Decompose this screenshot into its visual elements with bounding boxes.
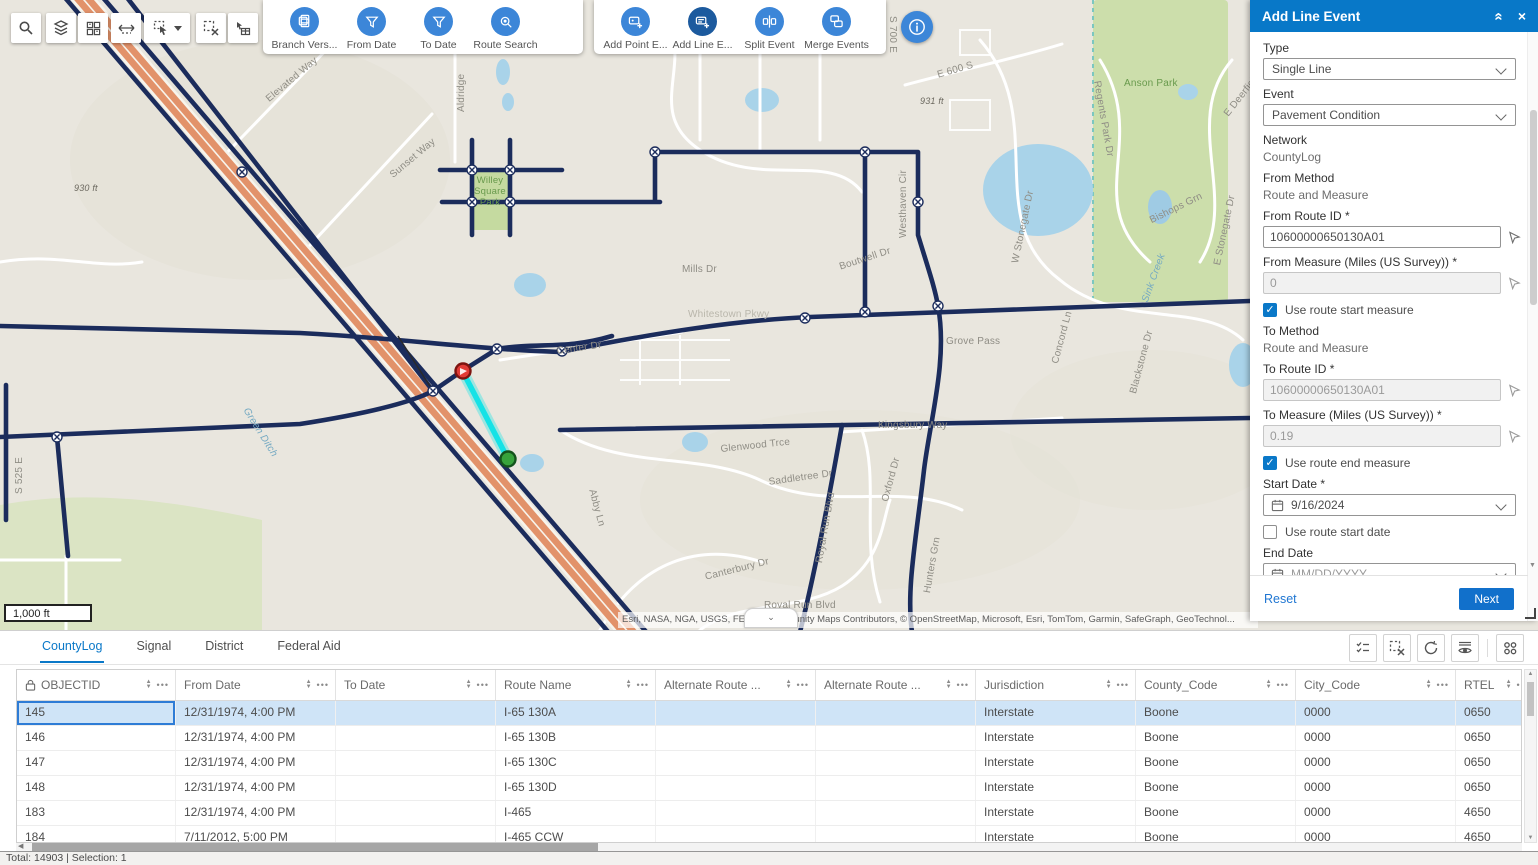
route-node-marker [650,147,660,157]
to-date-filter-icon [424,7,453,36]
panel-resize-handle[interactable] [1525,608,1536,619]
table-cell[interactable] [336,701,496,725]
table-options-button[interactable] [1496,634,1524,662]
table-cell[interactable] [656,826,816,843]
table-cell[interactable] [336,751,496,775]
map-label: 930 ft [74,183,98,193]
map-label: 931 ft [920,96,944,106]
split-event-icon [755,7,784,36]
table-cell[interactable]: I-65 130C [496,751,656,775]
table-row[interactable]: 1847/11/2012, 5:00 PMI-465 CCWInterstate… [17,826,1521,843]
from-method-value: Route and Measure [1263,188,1522,202]
network-value: CountyLog [1263,150,1522,164]
panel-title: Add Line Event [1262,9,1360,24]
use-route-start-measure-checkbox[interactable]: ✓ [1263,303,1277,317]
tool-branch-versions[interactable]: Branch Vers... [271,7,338,51]
toolbar-events: Add Point E... Add Line E... Split Event… [594,0,886,54]
tool-to-date[interactable]: To Date [405,7,472,51]
tool-route-search[interactable]: Route Search [472,7,539,51]
scale-bar: 1,000 ft [4,604,92,622]
merge-events-icon [822,7,851,36]
close-panel-icon[interactable]: × [1518,9,1526,23]
scroll-left-arrow[interactable]: ◀ [18,842,23,850]
to-measure-input[interactable] [1263,425,1501,447]
chevron-down-icon [1495,63,1506,74]
from-measure-label: From Measure (Miles (US Survey)) * [1263,255,1522,269]
clear-selection-icon [1389,640,1405,656]
table-cell[interactable] [816,701,976,725]
attribute-table-panel: CountyLog Signal District Federal Aid OB… [0,630,1538,865]
tab-countylog[interactable]: CountyLog [40,631,104,663]
column-header[interactable]: Jurisdiction▲▼••• [976,670,1136,700]
column-menu-icon[interactable]: ••• [957,680,969,690]
tab-district[interactable]: District [203,631,245,663]
clear-selection-icon [203,20,219,36]
end-date-label: End Date [1263,546,1522,560]
add-line-event-icon [688,7,717,36]
table-tabs-row: CountyLog Signal District Federal Aid [0,631,1538,665]
table-cell[interactable]: 146 [17,726,176,750]
table-cell[interactable]: 183 [17,801,176,825]
selection-list-icon [1355,640,1371,656]
tool-add-line-event[interactable]: Add Line E... [669,7,736,51]
from-measure-input[interactable] [1263,272,1501,294]
pick-to-route-icon[interactable] [1508,384,1521,397]
map-label: Aldridge [456,74,467,112]
map-label: Kingsbury Way [878,420,947,431]
route-node-marker [860,147,870,157]
column-header[interactable]: County_Code▲▼••• [1136,670,1296,700]
pick-to-measure-icon[interactable] [1508,430,1521,443]
table-body: 14512/31/1974, 4:00 PMI-65 130AInterstat… [17,701,1521,843]
sort-icon[interactable]: ▲▼ [1266,680,1272,690]
refresh-icon [1423,640,1439,656]
collapse-panel-icon[interactable]: « [1492,12,1507,20]
to-route-id-input[interactable] [1263,379,1501,401]
column-header[interactable]: Route Name▲▼••• [496,670,656,700]
panel-header: Add Line Event « × [1250,0,1538,32]
from-date-filter-icon [357,7,386,36]
lock-icon [25,679,36,691]
sort-icon[interactable]: ▲▼ [626,680,632,690]
sort-icon[interactable]: ▲▼ [146,680,152,690]
column-header[interactable]: City_Code▲▼••• [1296,670,1456,700]
pick-from-measure-icon[interactable] [1508,277,1521,290]
sort-icon[interactable]: ▲▼ [786,680,792,690]
table-cell[interactable]: 12/31/1974, 4:00 PM [176,726,336,750]
map-label: Anson Park [1124,78,1178,89]
table-cell[interactable] [656,751,816,775]
table-row[interactable]: 18312/31/1974, 4:00 PMI-465InterstateBoo… [17,801,1521,826]
route-node-marker [505,165,515,175]
tool-from-date[interactable]: From Date [338,7,405,51]
table-cell[interactable]: Interstate [976,751,1136,775]
column-header[interactable]: From Date▲▼••• [176,670,336,700]
status-bar: Total: 14903 | Selection: 1 [0,851,1538,865]
from-route-id-label: From Route ID * [1263,209,1522,223]
table-cell[interactable] [656,701,816,725]
column-menu-icon[interactable]: ••• [1517,680,1522,690]
chevron-down-icon [1495,568,1506,575]
table-cell[interactable]: Boone [1136,776,1296,800]
table-cell[interactable]: 148 [17,776,176,800]
calendar-icon [1271,568,1284,576]
measure-icon [118,21,135,35]
table-cell[interactable]: 0000 [1296,726,1456,750]
table-row[interactable]: 14512/31/1974, 4:00 PMI-65 130AInterstat… [17,701,1521,726]
table-cell[interactable]: 12/31/1974, 4:00 PM [176,751,336,775]
from-route-id-input[interactable] [1263,226,1501,248]
table-cell[interactable] [336,826,496,843]
measure-button[interactable] [111,13,141,43]
route-node-marker [913,197,923,207]
tab-federal-aid[interactable]: Federal Aid [275,631,342,663]
next-button[interactable]: Next [1459,588,1514,610]
column-header[interactable]: Alternate Route ...▲▼••• [656,670,816,700]
route-node-marker [428,386,438,396]
basemap-gallery-button[interactable] [78,13,108,43]
table-cell[interactable]: Interstate [976,726,1136,750]
route-node-marker [52,432,62,442]
from-method-label: From Method [1263,171,1522,185]
route-node-marker [800,313,810,323]
table-vertical-scrollbar[interactable]: ▲ ▼ [1524,669,1537,843]
to-route-id-label: To Route ID * [1263,362,1522,376]
table-cell[interactable] [816,776,976,800]
table-cell[interactable]: I-65 130D [496,776,656,800]
sort-icon[interactable]: ▲▼ [1426,680,1432,690]
table-cell[interactable] [336,776,496,800]
layers-icon [53,20,69,36]
table-cell[interactable]: I-465 [496,801,656,825]
toolbar-primary: Branch Vers... From Date To Date Route S… [263,0,583,54]
table-cell[interactable] [656,801,816,825]
branch-versions-icon [290,7,319,36]
table-cell[interactable]: 0000 [1296,776,1456,800]
chevron-down-icon [1495,499,1506,510]
map-attribution: Esri, NASA, NGA, USGS, FEMA | Community … [618,612,1258,628]
table-cell[interactable] [336,726,496,750]
table-cell[interactable]: 145 [17,701,176,725]
table-cell[interactable]: I-65 130A [496,701,656,725]
select-by-attributes-button[interactable] [228,13,258,43]
column-menu-icon[interactable]: ••• [1117,680,1129,690]
add-line-event-panel: Add Line Event « × Type Single Line Even… [1250,0,1538,621]
use-route-start-date-checkbox[interactable] [1263,525,1277,539]
map-label: S 525 E [14,457,25,494]
table-cell[interactable]: Interstate [976,801,1136,825]
route-start-marker [456,364,471,379]
use-route-end-measure-label: Use route end measure [1285,456,1410,470]
refresh-button[interactable] [1417,634,1445,662]
to-measure-label: To Measure (Miles (US Survey)) * [1263,408,1522,422]
basemap-grid-icon [86,21,101,36]
table-cell[interactable]: I-465 CCW [496,826,656,843]
attribute-table: OBJECTID▲▼•••From Date▲▼•••To Date▲▼•••R… [16,669,1522,843]
table-cell[interactable]: 0650 [1456,751,1522,775]
to-method-label: To Method [1263,324,1522,338]
route-node-marker [933,301,943,311]
table-cell[interactable]: 12/31/1974, 4:00 PM [176,776,336,800]
panel-body: Type Single Line Event Pavement Conditio… [1250,32,1528,575]
table-cell[interactable] [816,826,976,843]
table-cell[interactable]: 12/31/1974, 4:00 PM [176,701,336,725]
table-cell[interactable]: 0000 [1296,701,1456,725]
table-cell[interactable] [336,801,496,825]
use-route-start-measure-label: Use route start measure [1285,303,1414,317]
table-cell[interactable]: 0650 [1456,776,1522,800]
sort-icon[interactable]: ▲▼ [1506,680,1512,690]
route-node-marker [492,344,502,354]
show-selection-button[interactable] [1349,634,1377,662]
search-icon [18,20,34,36]
map-label: Mills Dr [682,264,717,275]
table-cell[interactable]: 4650 [1456,826,1522,843]
add-point-event-icon [621,7,650,36]
type-label: Type [1263,41,1522,55]
table-cell[interactable]: 0000 [1296,751,1456,775]
toolbar-divider [1487,639,1488,657]
column-header[interactable]: To Date▲▼••• [336,670,496,700]
table-row[interactable]: 14712/31/1974, 4:00 PMI-65 130CInterstat… [17,751,1521,776]
column-header[interactable]: RTEL▲▼••• [1456,670,1522,700]
sort-icon[interactable]: ▲▼ [466,680,472,690]
route-end-marker [501,452,516,467]
table-cell[interactable]: 7/11/2012, 5:00 PM [176,826,336,843]
table-cell[interactable]: 12/31/1974, 4:00 PM [176,801,336,825]
table-cell[interactable] [816,751,976,775]
route-node-marker [860,307,870,317]
clear-selection-button[interactable] [1383,634,1411,662]
search-button[interactable] [11,13,41,43]
tool-add-point-event[interactable]: Add Point E... [602,7,669,51]
table-cell[interactable]: Boone [1136,751,1296,775]
attribution-collapse-toggle[interactable]: ⌄ [744,608,798,628]
column-header[interactable]: OBJECTID▲▼••• [17,670,176,700]
tool-merge-events[interactable]: Merge Events [803,7,870,51]
map-label: Grove Pass [946,336,1000,347]
column-menu-icon[interactable]: ••• [477,680,489,690]
sort-icon[interactable]: ▲▼ [1106,680,1112,690]
start-date-label: Start Date * [1263,477,1522,491]
column-header[interactable]: Alternate Route ...▲▼••• [816,670,976,700]
table-cell[interactable]: 0650 [1456,726,1522,750]
event-select[interactable]: Pavement Condition [1263,104,1516,126]
table-cell[interactable]: Boone [1136,826,1296,843]
column-menu-icon[interactable]: ••• [637,680,649,690]
table-cell[interactable]: I-65 130B [496,726,656,750]
route-node-marker [467,165,477,175]
table-header: OBJECTID▲▼•••From Date▲▼•••To Date▲▼•••R… [17,670,1521,701]
table-cell[interactable]: Boone [1136,701,1296,725]
table-cell[interactable]: 0000 [1296,801,1456,825]
map-label: S 700 E [887,16,898,53]
column-menu-icon[interactable]: ••• [1437,680,1449,690]
info-button[interactable] [901,11,933,43]
table-cell[interactable]: 184 [17,826,176,843]
table-cell[interactable]: 4650 [1456,801,1522,825]
column-menu-icon[interactable]: ••• [797,680,809,690]
info-icon [908,18,926,36]
table-row[interactable]: 14612/31/1974, 4:00 PMI-65 130BInterstat… [17,726,1521,751]
record-count: Total: 14903 | Selection: 1 [6,852,127,864]
scrollbar-thumb[interactable] [32,843,598,851]
select-button[interactable] [144,13,190,43]
table-cell[interactable] [656,726,816,750]
tab-signal[interactable]: Signal [134,631,173,663]
tool-split-event[interactable]: Split Event [736,7,803,51]
table-cell[interactable]: 147 [17,751,176,775]
sort-icon[interactable]: ▲▼ [946,680,952,690]
apps-grid-icon [1502,640,1518,656]
column-menu-icon[interactable]: ••• [317,680,329,690]
clear-selection-map-button[interactable] [196,13,226,43]
route-search-icon [491,7,520,36]
panel-footer: Reset Next [1250,575,1528,621]
start-date-picker[interactable]: 9/16/2024 [1263,494,1516,516]
use-route-start-date-label: Use route start date [1285,525,1390,539]
layers-button[interactable] [46,13,76,43]
calendar-icon [1271,499,1284,512]
panel-scrollbar[interactable]: ▼ [1527,32,1538,621]
use-route-end-measure-checkbox[interactable]: ✓ [1263,456,1277,470]
select-dropdown-caret[interactable] [174,26,182,31]
table-cell[interactable] [816,801,976,825]
table-row[interactable]: 14812/31/1974, 4:00 PMI-65 130DInterstat… [17,776,1521,801]
route-node-marker [237,167,247,177]
to-method-value: Route and Measure [1263,341,1522,355]
column-menu-icon[interactable]: ••• [1277,680,1289,690]
cursor-table-icon [235,20,251,36]
eye-list-icon [1457,640,1473,656]
show-selected-records-button[interactable] [1451,634,1479,662]
reset-link[interactable]: Reset [1264,592,1297,606]
pick-from-route-icon[interactable] [1508,231,1521,244]
column-menu-icon[interactable]: ••• [157,680,169,690]
table-cell[interactable]: Boone [1136,726,1296,750]
end-date-picker[interactable]: MM/DD/YYYY [1263,563,1516,575]
map-label: Willey Square Park [468,176,512,209]
table-cell[interactable]: 0650 [1456,701,1522,725]
table-cell[interactable]: Boone [1136,801,1296,825]
chevron-down-icon [1495,109,1506,120]
map-label: Whitestown Pkwy [688,309,769,320]
table-cell[interactable]: Interstate [976,826,1136,843]
table-cell[interactable]: Interstate [976,776,1136,800]
table-cell[interactable] [816,726,976,750]
table-cell[interactable]: Interstate [976,701,1136,725]
sort-icon[interactable]: ▲▼ [306,680,312,690]
type-select[interactable]: Single Line [1263,58,1516,80]
table-cell[interactable]: 0000 [1296,826,1456,843]
event-label: Event [1263,87,1522,101]
select-cursor-icon [153,20,169,36]
network-label: Network [1263,133,1522,147]
table-cell[interactable] [656,776,816,800]
table-horizontal-scrollbar[interactable]: ◀ [16,843,1522,851]
map-label: Westhaven Cir [898,170,909,238]
